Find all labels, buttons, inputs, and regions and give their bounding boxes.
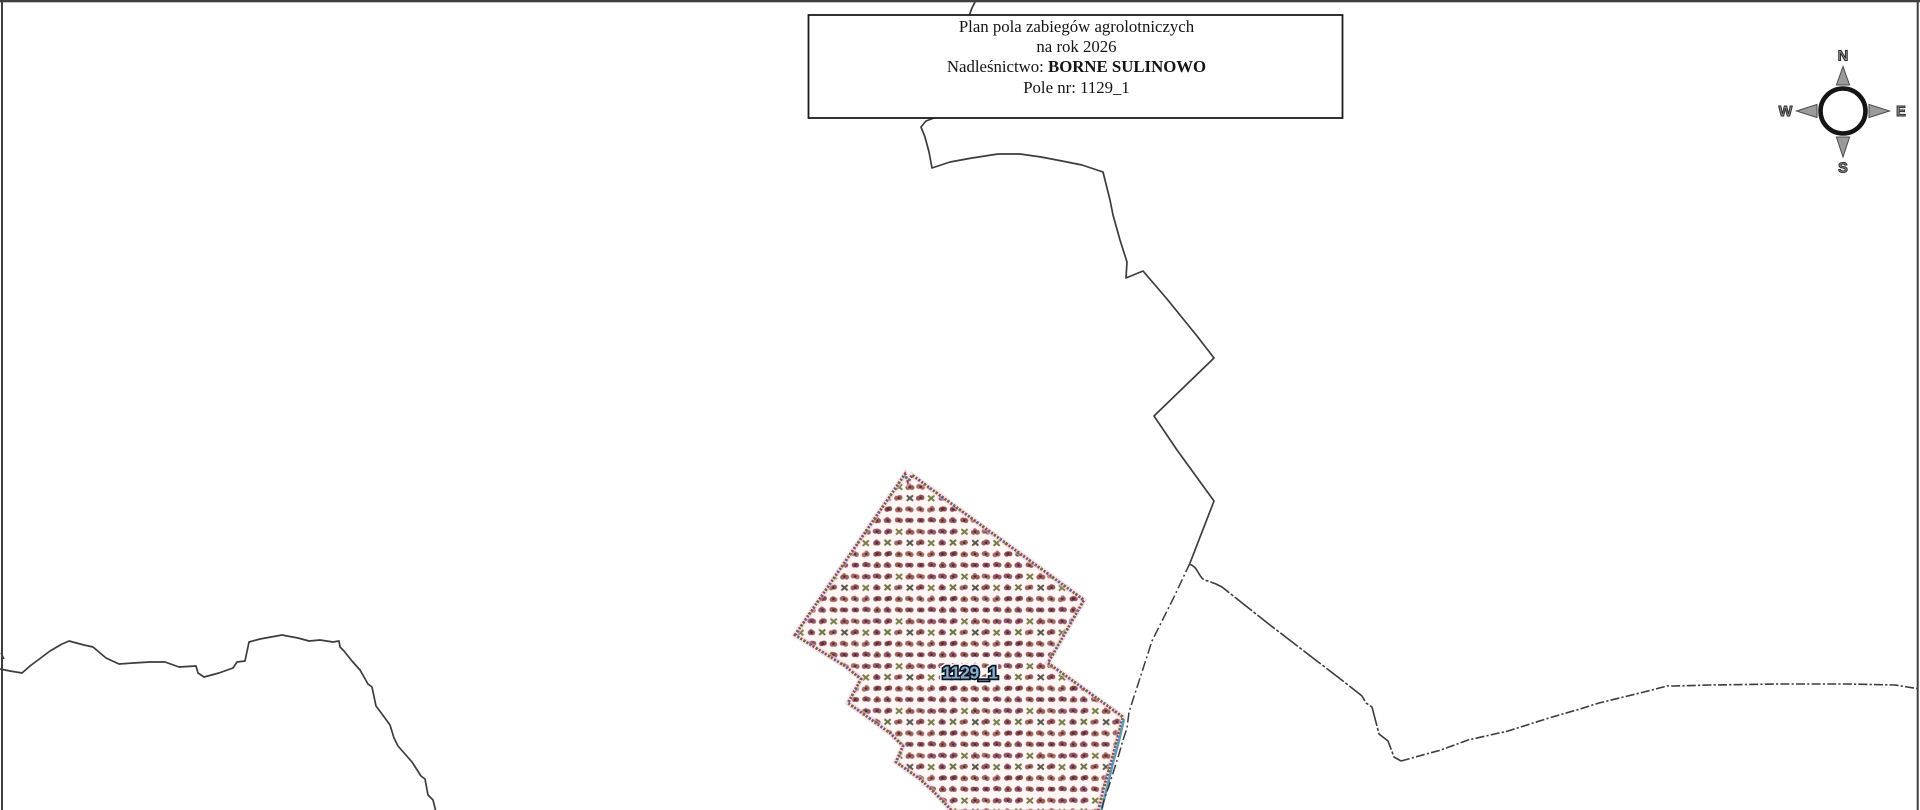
svg-text:Plan pola zabiegów agrolotnicz: Plan pola zabiegów agrolotniczych xyxy=(959,17,1195,36)
svg-text:na rok 2026: na rok 2026 xyxy=(1036,37,1116,56)
svg-text:Pole nr: 1129_1: Pole nr: 1129_1 xyxy=(1023,78,1130,97)
svg-text:Nadleśnictwo: BORNE SULINOWO: Nadleśnictwo: BORNE SULINOWO xyxy=(947,57,1206,76)
svg-text:W: W xyxy=(1779,104,1793,120)
svg-text:N: N xyxy=(1838,49,1848,65)
svg-text:S: S xyxy=(1838,161,1848,177)
svg-text:E: E xyxy=(1896,104,1906,120)
svg-text:1129_1: 1129_1 xyxy=(942,663,998,683)
